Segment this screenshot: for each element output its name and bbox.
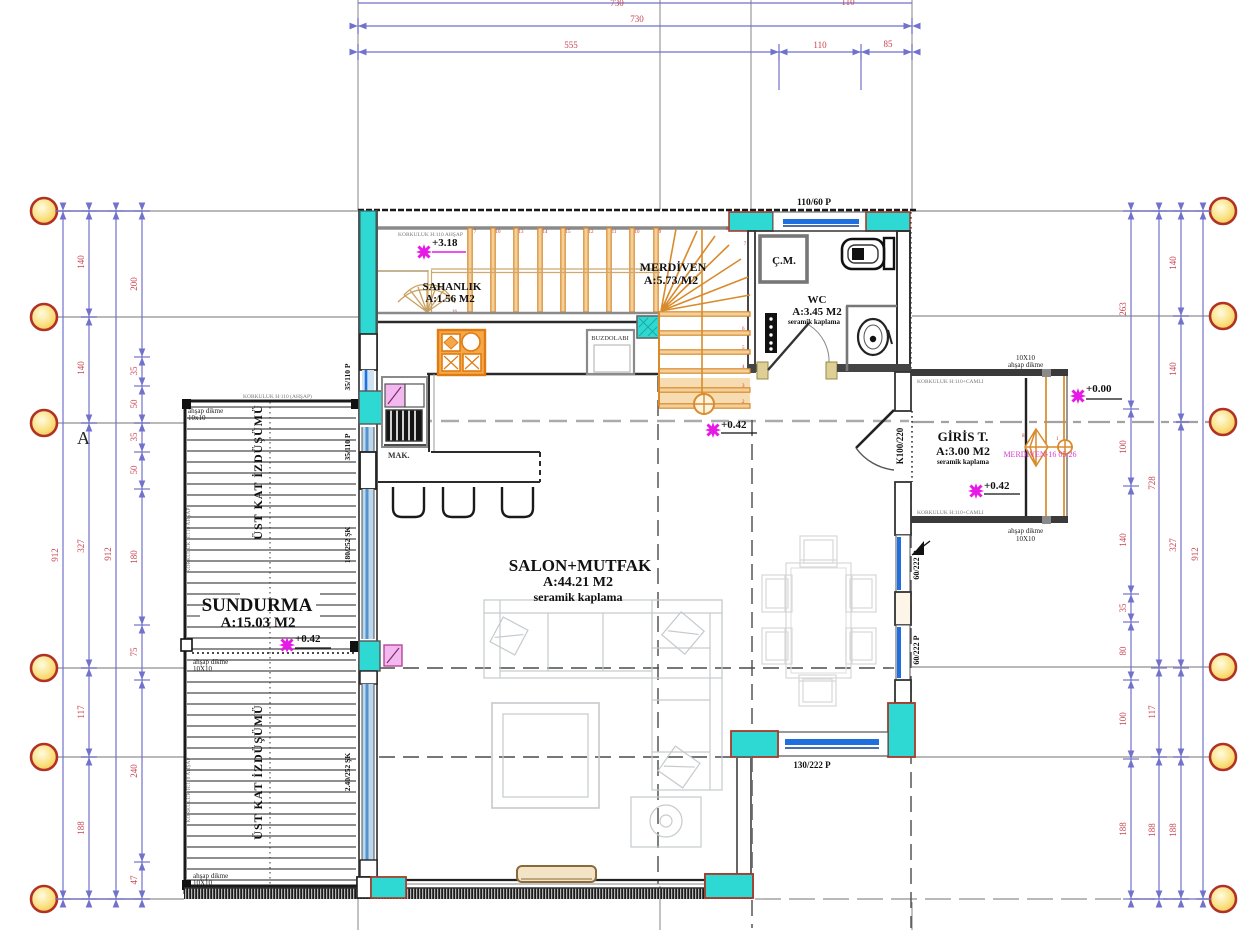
svg-text:130/222 P: 130/222 P [793, 760, 831, 770]
svg-text:555: 555 [564, 40, 578, 50]
svg-text:KORKULUK H:110+CAMLI: KORKULUK H:110+CAMLI [917, 379, 984, 385]
svg-text:180: 180 [129, 550, 139, 564]
svg-text:2.40/252 ŞK: 2.40/252 ŞK [343, 753, 352, 792]
svg-text:110/60 P: 110/60 P [797, 198, 831, 208]
svg-text:240: 240 [129, 764, 139, 778]
svg-text:A:3.00 M2: A:3.00 M2 [936, 444, 990, 458]
svg-text:912: 912 [103, 547, 113, 561]
svg-text:140: 140 [1168, 256, 1178, 270]
svg-text:35/110 P: 35/110 P [343, 363, 352, 390]
svg-text:SUNDURMA: SUNDURMA [202, 595, 313, 616]
svg-text:47: 47 [129, 875, 139, 885]
svg-text:10X10: 10X10 [1016, 535, 1036, 543]
svg-text:263: 263 [1118, 302, 1128, 316]
svg-text:K100/220: K100/220 [895, 427, 905, 464]
svg-text:ahşap dikme: ahşap dikme [1008, 527, 1043, 535]
svg-text:+0.42: +0.42 [984, 480, 1010, 492]
svg-text:188: 188 [1147, 823, 1157, 837]
svg-text:KORKULUK H:110 AHŞAP: KORKULUK H:110 AHŞAP [398, 232, 463, 238]
svg-text:KORKULUK H:110 (AHŞAP): KORKULUK H:110 (AHŞAP) [243, 393, 312, 400]
svg-text:35: 35 [129, 366, 139, 376]
svg-text:100: 100 [1118, 440, 1128, 454]
svg-text:seramik kaplama: seramik kaplama [533, 590, 622, 604]
svg-text:140: 140 [1118, 533, 1128, 547]
svg-text:35: 35 [129, 432, 139, 442]
svg-text:MERDİVEN: MERDİVEN [640, 260, 707, 274]
svg-text:35: 35 [1118, 603, 1128, 613]
svg-text:50: 50 [129, 465, 139, 475]
svg-text:912: 912 [50, 548, 60, 562]
svg-text:KORKULUK H:110 AHŞAP: KORKULUK H:110 AHŞAP [186, 758, 192, 823]
svg-text:BUZDOLABI: BUZDOLABI [591, 335, 629, 342]
svg-text:A:1.56 M2: A:1.56 M2 [425, 293, 475, 305]
svg-text:ÜST KAT İZDÜŞÜMÜ: ÜST KAT İZDÜŞÜMÜ [251, 704, 265, 839]
svg-text:SAHANLIK: SAHANLIK [423, 281, 482, 293]
svg-text:SALON+MUTFAK: SALON+MUTFAK [509, 556, 652, 575]
svg-text:15: 15 [566, 230, 572, 235]
svg-text:Ç.M.: Ç.M. [772, 255, 796, 267]
svg-text:A:3.45 M2: A:3.45 M2 [792, 306, 842, 318]
svg-text:35/110 P: 35/110 P [343, 433, 352, 460]
svg-text:GİRİS T.: GİRİS T. [938, 429, 989, 444]
svg-text:110: 110 [841, 0, 855, 7]
svg-text:188: 188 [1118, 822, 1128, 836]
svg-text:140: 140 [1168, 362, 1178, 376]
svg-text:10: 10 [496, 230, 502, 235]
svg-text:+3.18: +3.18 [432, 237, 458, 249]
svg-text:117: 117 [76, 705, 86, 719]
svg-text:KORKULUK H:110 AHŞAP: KORKULUK H:110 AHŞAP [186, 508, 192, 573]
svg-text:188: 188 [76, 821, 86, 835]
svg-text:200: 200 [129, 277, 139, 291]
svg-text:MERDİVEN-16 05/26: MERDİVEN-16 05/26 [1003, 450, 1076, 459]
svg-text:A:44.21 M2: A:44.21 M2 [543, 575, 613, 590]
svg-text:WC: WC [808, 294, 827, 306]
svg-text:+0.00: +0.00 [1086, 383, 1112, 395]
svg-text:A:15.03 M2: A:15.03 M2 [221, 615, 296, 631]
svg-text:ahşap dikme: ahşap dikme [1008, 361, 1043, 369]
svg-text:60/222 P: 60/222 P [912, 635, 921, 664]
svg-text:327: 327 [76, 539, 86, 553]
svg-text:140: 140 [76, 255, 86, 269]
svg-text:11: 11 [612, 230, 617, 235]
svg-text:10x10: 10x10 [188, 414, 206, 422]
svg-text:730: 730 [630, 14, 644, 24]
svg-text:A:5.73/M2: A:5.73/M2 [644, 273, 698, 287]
svg-text:MAK.: MAK. [388, 451, 410, 460]
svg-text:80: 80 [1118, 646, 1128, 656]
svg-text:100: 100 [1118, 712, 1128, 726]
svg-text:12: 12 [589, 230, 595, 235]
svg-text:14: 14 [543, 230, 549, 235]
svg-text:ÜST KAT İZDÜŞÜMÜ: ÜST KAT İZDÜŞÜMÜ [251, 404, 265, 539]
svg-text:140: 140 [76, 361, 86, 375]
svg-text:117: 117 [1147, 705, 1157, 719]
svg-text:85: 85 [884, 39, 894, 49]
svg-text:188: 188 [1168, 823, 1178, 837]
svg-text:seramik kaplama: seramik kaplama [937, 458, 989, 466]
svg-text:50: 50 [129, 399, 139, 409]
svg-text:KORKULUK H:110+CAMLI: KORKULUK H:110+CAMLI [917, 510, 984, 516]
svg-text:730: 730 [610, 0, 624, 8]
svg-text:75: 75 [129, 647, 139, 657]
svg-text:327: 327 [1168, 538, 1178, 552]
svg-text:110: 110 [813, 40, 827, 50]
svg-text:728: 728 [1147, 476, 1157, 490]
svg-text:10X10: 10X10 [193, 879, 213, 887]
svg-text:912: 912 [1190, 547, 1200, 561]
svg-text:+0.42: +0.42 [295, 633, 321, 645]
svg-text:13: 13 [519, 230, 525, 235]
svg-text:10X10: 10X10 [193, 665, 213, 673]
svg-text:+0.42: +0.42 [721, 419, 747, 431]
svg-text:10: 10 [635, 230, 641, 235]
svg-text:180/252 ŞK: 180/252 ŞK [343, 527, 352, 564]
svg-text:seramik kaplama: seramik kaplama [788, 318, 840, 326]
